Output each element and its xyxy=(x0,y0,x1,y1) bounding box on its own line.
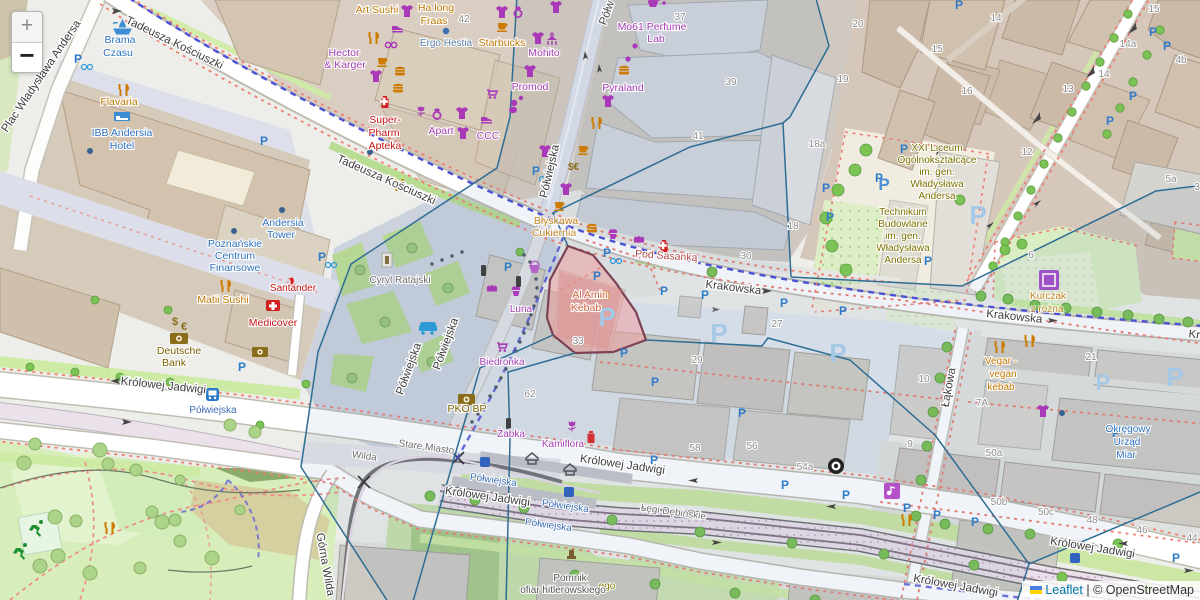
svg-text:P: P xyxy=(826,210,834,224)
svg-text:46: 46 xyxy=(1136,525,1148,536)
svg-text:ofiar hitlerowskiego: ofiar hitlerowskiego xyxy=(520,585,606,596)
svg-text:IBB Andersia: IBB Andersia xyxy=(92,127,153,139)
svg-text:Pomnik: Pomnik xyxy=(553,573,587,584)
svg-text:42: 42 xyxy=(458,14,470,25)
svg-text:PKO BP: PKO BP xyxy=(447,403,486,415)
svg-text:9: 9 xyxy=(907,439,913,450)
svg-text:Ha long: Ha long xyxy=(418,2,454,14)
svg-text:10: 10 xyxy=(918,374,930,385)
svg-text:Ogólnokształcące: Ogólnokształcące xyxy=(898,155,977,166)
svg-text:P: P xyxy=(260,134,268,148)
svg-text:P: P xyxy=(710,318,727,348)
svg-text:54a: 54a xyxy=(797,462,814,473)
svg-text:P: P xyxy=(74,52,82,66)
svg-text:Lab: Lab xyxy=(647,33,665,45)
svg-text:50b: 50b xyxy=(991,497,1008,508)
svg-text:Bank: Bank xyxy=(162,357,187,369)
svg-text:P: P xyxy=(903,501,911,515)
svg-text:Deutsche: Deutsche xyxy=(157,345,202,357)
svg-text:P: P xyxy=(620,346,628,360)
svg-text:Urząd: Urząd xyxy=(1114,437,1141,448)
svg-text:6: 6 xyxy=(1028,250,1034,261)
svg-text:Super-: Super- xyxy=(369,114,401,126)
svg-text:44: 44 xyxy=(1186,533,1198,544)
svg-text:Cyryl Ratajski: Cyryl Ratajski xyxy=(369,275,430,286)
svg-text:Hector: Hector xyxy=(329,47,360,59)
svg-text:Kebab: Kebab xyxy=(571,302,602,314)
svg-text:Apart: Apart xyxy=(428,125,453,137)
svg-text:z rożna: z rożna xyxy=(1031,304,1064,315)
svg-text:Starbucks: Starbucks xyxy=(479,37,526,49)
svg-text:P: P xyxy=(504,260,512,274)
svg-text:Andersa: Andersa xyxy=(918,191,956,202)
svg-text:P: P xyxy=(955,0,963,12)
svg-text:Andersia: Andersia xyxy=(262,217,304,229)
svg-text:Matii Sushi: Matii Sushi xyxy=(197,294,248,306)
svg-text:58: 58 xyxy=(689,443,701,454)
svg-text:$€: $€ xyxy=(568,162,580,173)
svg-text:P: P xyxy=(969,200,986,230)
svg-text:P: P xyxy=(900,142,908,156)
svg-text:P: P xyxy=(822,181,830,195)
svg-text:P: P xyxy=(532,164,540,178)
svg-text:kebab: kebab xyxy=(987,382,1015,393)
svg-text:Władysława: Władysława xyxy=(910,179,964,190)
svg-text:Pyraland: Pyraland xyxy=(602,82,644,94)
svg-text:Kr: Kr xyxy=(1188,328,1200,341)
svg-text:14: 14 xyxy=(990,13,1002,24)
svg-text:Czasu: Czasu xyxy=(103,47,133,59)
svg-text:CCC: CCC xyxy=(477,130,500,142)
svg-text:& Karger: & Karger xyxy=(324,59,366,71)
svg-text:20: 20 xyxy=(852,19,864,30)
svg-text:Andersa: Andersa xyxy=(884,255,922,266)
svg-text:im. gen.: im. gen. xyxy=(919,167,955,178)
svg-text:5a: 5a xyxy=(1165,174,1177,185)
svg-text:P: P xyxy=(1096,370,1111,395)
svg-text:48: 48 xyxy=(1086,515,1098,526)
svg-text:18: 18 xyxy=(787,221,799,232)
svg-text:XXI Liceum: XXI Liceum xyxy=(911,143,962,154)
svg-text:P: P xyxy=(829,338,846,368)
svg-text:P: P xyxy=(781,478,789,492)
svg-text:P: P xyxy=(1106,114,1114,128)
svg-text:Poznańskie: Poznańskie xyxy=(208,238,262,250)
svg-text:Pharm: Pharm xyxy=(369,127,400,139)
svg-text:Apteka: Apteka xyxy=(369,140,402,152)
svg-text:Hotel: Hotel xyxy=(110,140,135,152)
svg-text:$: $ xyxy=(172,316,178,328)
svg-text:15: 15 xyxy=(931,44,943,55)
svg-text:P: P xyxy=(924,254,932,268)
svg-text:3: 3 xyxy=(1194,182,1200,193)
svg-text:P: P xyxy=(238,360,246,374)
svg-text:4b: 4b xyxy=(1175,55,1187,66)
svg-text:im. gen.: im. gen. xyxy=(885,231,921,242)
svg-text:Brama: Brama xyxy=(105,34,136,46)
svg-text:Okręgowy: Okręgowy xyxy=(1105,424,1150,435)
svg-text:Budowlane: Budowlane xyxy=(878,219,928,230)
svg-text:Cukiernia: Cukiernia xyxy=(532,227,577,239)
svg-text:P: P xyxy=(660,284,668,298)
svg-text:P: P xyxy=(1163,39,1171,53)
svg-text:Miar: Miar xyxy=(1116,450,1136,461)
svg-text:P: P xyxy=(738,406,746,420)
svg-text:18a: 18a xyxy=(809,139,826,150)
svg-text:Biedronka: Biedronka xyxy=(479,357,524,368)
svg-text:Kurczak: Kurczak xyxy=(1030,291,1067,302)
svg-text:29: 29 xyxy=(691,355,703,366)
svg-text:P: P xyxy=(1166,362,1183,392)
svg-text:P: P xyxy=(933,508,941,522)
svg-text:P: P xyxy=(1149,25,1157,39)
svg-text:Medicover: Medicover xyxy=(249,317,298,329)
svg-text:P: P xyxy=(1172,551,1180,565)
svg-text:50a: 50a xyxy=(986,448,1003,459)
svg-text:56: 56 xyxy=(746,441,758,452)
svg-text:P: P xyxy=(971,515,979,529)
svg-text:14a: 14a xyxy=(1120,39,1137,50)
svg-text:27: 27 xyxy=(771,319,783,330)
svg-text:15: 15 xyxy=(1148,4,1160,15)
svg-text:Centrum: Centrum xyxy=(215,250,256,262)
svg-text:P: P xyxy=(839,304,847,318)
svg-text:39: 39 xyxy=(725,77,737,88)
svg-text:12: 12 xyxy=(1021,147,1033,158)
svg-text:P: P xyxy=(878,175,889,194)
svg-text:Promod: Promod xyxy=(512,81,549,93)
svg-text:Żabka: Żabka xyxy=(497,427,525,440)
svg-text:Fraas: Fraas xyxy=(421,15,448,27)
svg-text:19: 19 xyxy=(837,74,849,85)
svg-text:50c: 50c xyxy=(1038,507,1054,518)
svg-text:41: 41 xyxy=(692,131,704,142)
svg-text:Władysława: Władysława xyxy=(876,243,930,254)
svg-text:P: P xyxy=(1129,89,1137,103)
svg-text:37: 37 xyxy=(674,12,686,23)
svg-text:Mohito: Mohito xyxy=(528,47,560,59)
svg-text:Luna: Luna xyxy=(510,304,533,315)
svg-text:30: 30 xyxy=(740,251,752,262)
svg-text:Santander: Santander xyxy=(270,283,317,294)
svg-text:62: 62 xyxy=(524,389,536,400)
svg-text:Vegar -: Vegar - xyxy=(985,356,1017,367)
svg-text:Tower: Tower xyxy=(267,229,296,241)
svg-text:P: P xyxy=(780,296,788,310)
svg-text:Flavaria: Flavaria xyxy=(100,96,138,108)
svg-text:vegan: vegan xyxy=(989,369,1016,380)
svg-text:Ergo Hestia: Ergo Hestia xyxy=(420,38,473,49)
svg-text:P: P xyxy=(593,269,601,283)
svg-text:16: 16 xyxy=(961,86,973,97)
svg-text:Finansowe: Finansowe xyxy=(210,262,261,274)
svg-text:14: 14 xyxy=(1098,69,1110,80)
svg-text:P: P xyxy=(603,246,611,260)
svg-text:Kamiflora: Kamiflora xyxy=(542,439,585,450)
svg-text:P: P xyxy=(651,375,659,389)
svg-text:Technikum: Technikum xyxy=(879,207,927,218)
svg-text:P: P xyxy=(842,488,850,502)
svg-text:Błyskawa: Błyskawa xyxy=(534,215,579,227)
svg-text:7A: 7A xyxy=(976,398,989,409)
svg-text:13: 13 xyxy=(1062,84,1074,95)
svg-text:P: P xyxy=(318,250,326,264)
svg-text:€: € xyxy=(181,321,187,333)
svg-text:Półwiejska: Półwiejska xyxy=(189,405,237,416)
svg-text:33: 33 xyxy=(572,336,584,347)
svg-text:Art Sushi: Art Sushi xyxy=(356,4,399,16)
svg-text:21: 21 xyxy=(1085,352,1097,363)
svg-text:Al Amin: Al Amin xyxy=(572,289,608,301)
